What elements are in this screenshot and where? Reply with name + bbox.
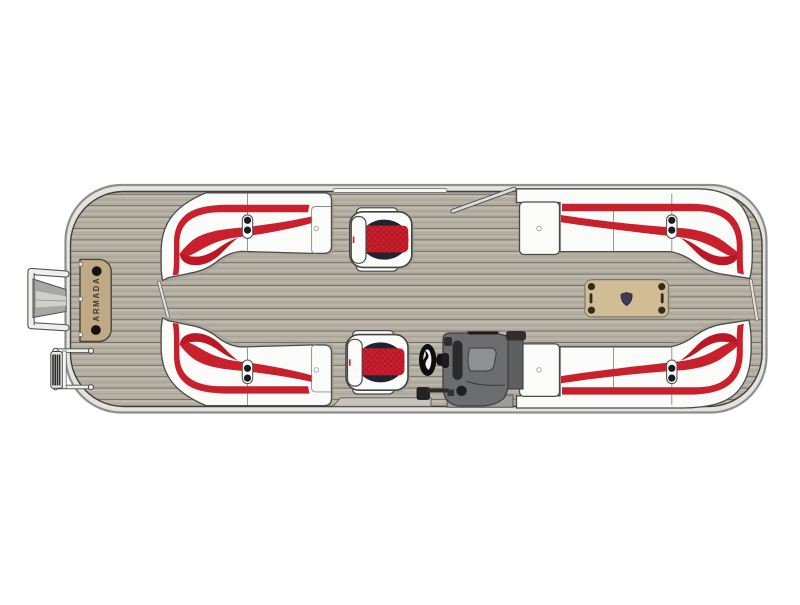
svg-text:ARMADA: ARMADA: [92, 277, 101, 322]
